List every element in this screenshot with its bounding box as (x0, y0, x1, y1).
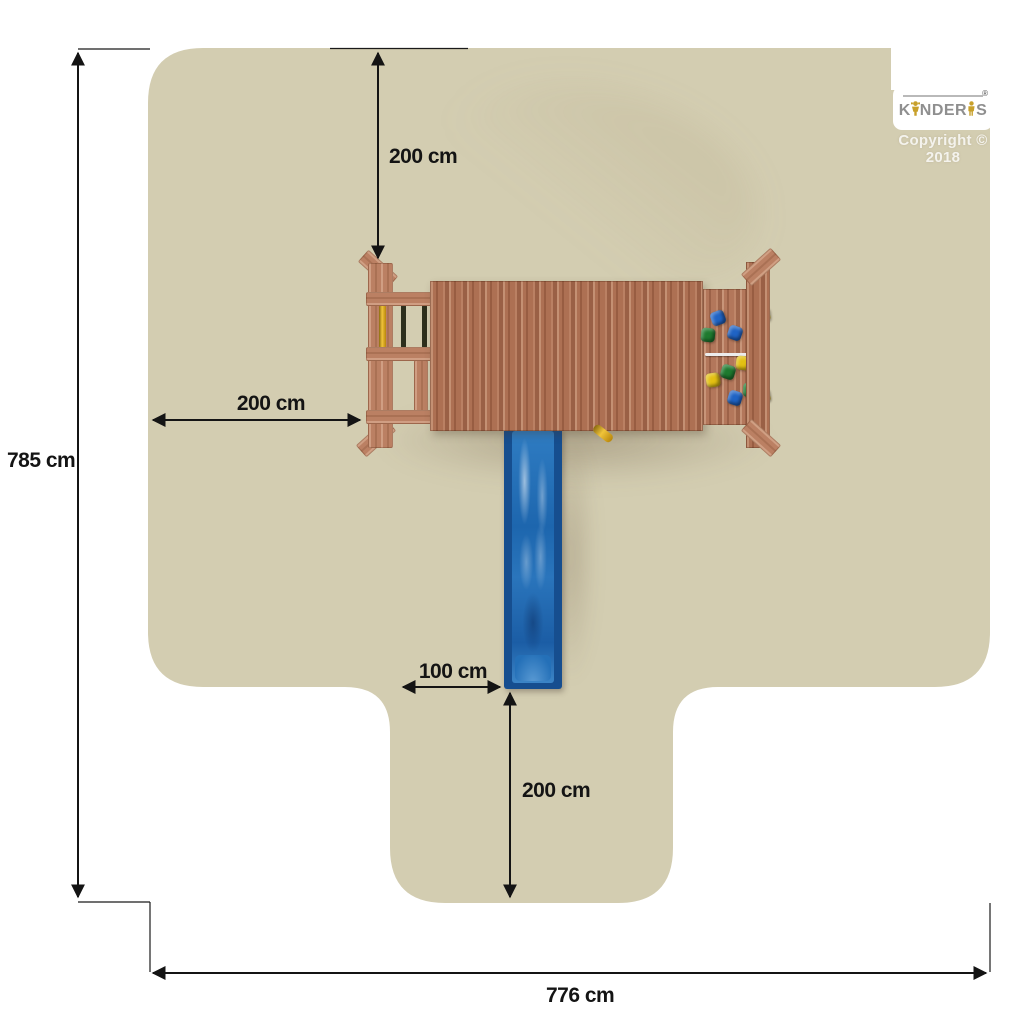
brand-name: KNDERS (893, 100, 993, 124)
girl-figure-icon (911, 101, 920, 124)
playset (0, 0, 1024, 1024)
dim-label-slide-runout: 200 cm (522, 779, 590, 803)
climbing-hold (726, 389, 743, 406)
brand-letter-k: K (899, 102, 911, 119)
logo-background (891, 38, 1024, 90)
climbing-hold (700, 327, 715, 342)
climbing-hold (709, 309, 727, 327)
dim-label-top-clearance: 200 cm (389, 145, 457, 169)
climbing-hold (726, 324, 744, 342)
climbing-hold (719, 363, 737, 381)
copyright-text: Copyright © 2018 (890, 132, 996, 166)
boy-figure-icon (967, 101, 976, 124)
dim-label-left-clearance: 200 cm (226, 392, 316, 416)
dim-label-total-depth: 785 cm (7, 449, 75, 473)
climbing-hold (705, 372, 721, 388)
dim-label-slide-offset: 100 cm (408, 660, 498, 684)
brand-letter-s: S (976, 102, 987, 119)
dim-label-total-width: 776 cm (546, 984, 614, 1008)
brand-letters-nder: NDER (920, 102, 967, 119)
diagram-canvas: 200 cm 200 cm 100 cm 200 cm 785 cm 776 c… (0, 0, 1024, 1024)
climbing-holds (0, 0, 1024, 1024)
logo-rule-line (903, 95, 983, 97)
registered-mark: ® (982, 89, 988, 98)
brand-logo: ® KNDERS (893, 86, 993, 130)
